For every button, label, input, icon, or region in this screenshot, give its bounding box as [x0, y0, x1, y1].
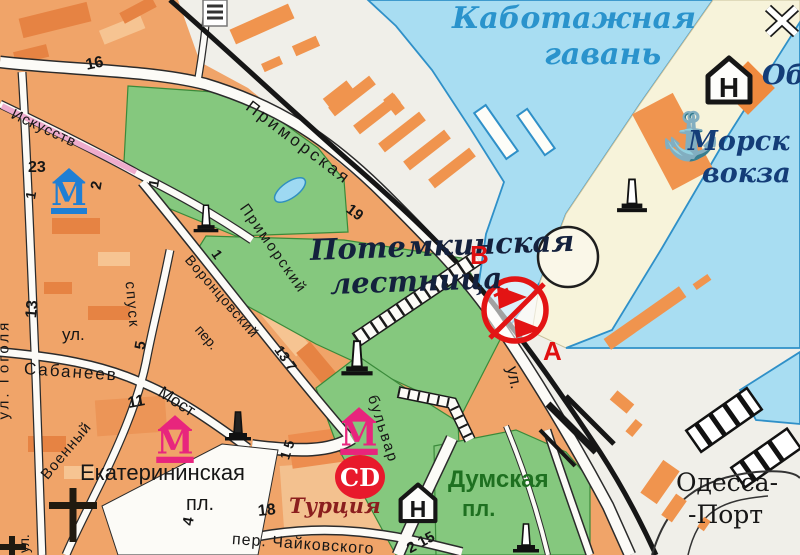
port-label-odessa-2: -Порт: [688, 502, 763, 527]
square-label-dumskaya: Думская: [448, 468, 549, 492]
route-marker-b[interactable]: В: [470, 242, 489, 268]
street-label-ul-port: ул.: [504, 365, 525, 391]
hotel-icon[interactable]: Н: [700, 50, 758, 113]
house-number: 11: [127, 393, 146, 412]
svg-text:Н: Н: [410, 496, 427, 522]
street-label-spusk: спуск: [123, 281, 142, 329]
route-marker-a[interactable]: А: [543, 338, 562, 364]
house-number: 13: [24, 300, 41, 319]
svg-text:М: М: [157, 423, 194, 462]
street-label-ul-sabaneev: ул.: [62, 326, 85, 343]
svg-text:М: М: [341, 415, 378, 454]
port-label-odessa-1: Одесса-: [676, 470, 778, 495]
hotel-icon[interactable]: Н: [394, 478, 442, 531]
museum-icon-blue[interactable]: М: [48, 165, 90, 220]
svg-text:CD: CD: [340, 463, 380, 492]
square-label-ekaterininskaya-pl: пл.: [186, 494, 214, 514]
clipped-label-ob: Об: [762, 62, 800, 89]
street-label-gogolya: ул. Гоголя: [0, 320, 12, 420]
city-map[interactable]: ⚓ ⚓: [0, 0, 800, 555]
svg-text:М: М: [51, 175, 86, 213]
house-number: 23: [28, 160, 46, 176]
building-icon: [203, 0, 227, 26]
water-label-cabotage-2: гавань: [544, 40, 661, 70]
museum-icon-pink[interactable]: М: [336, 404, 382, 461]
cd-consulate-badge[interactable]: CD: [334, 454, 386, 505]
marine-terminal-label-1: Морск: [688, 128, 790, 155]
marine-terminal-label-2: вокза: [702, 160, 791, 187]
square-label-dumskaya-pl: пл.: [462, 498, 495, 520]
street-label-ul-small: ул.: [17, 534, 31, 553]
museum-icon-pink[interactable]: М: [152, 412, 198, 469]
water-label-cabotage-1: Каботажная: [452, 4, 696, 34]
svg-text:Н: Н: [719, 72, 739, 103]
house-number: 18: [257, 502, 276, 520]
